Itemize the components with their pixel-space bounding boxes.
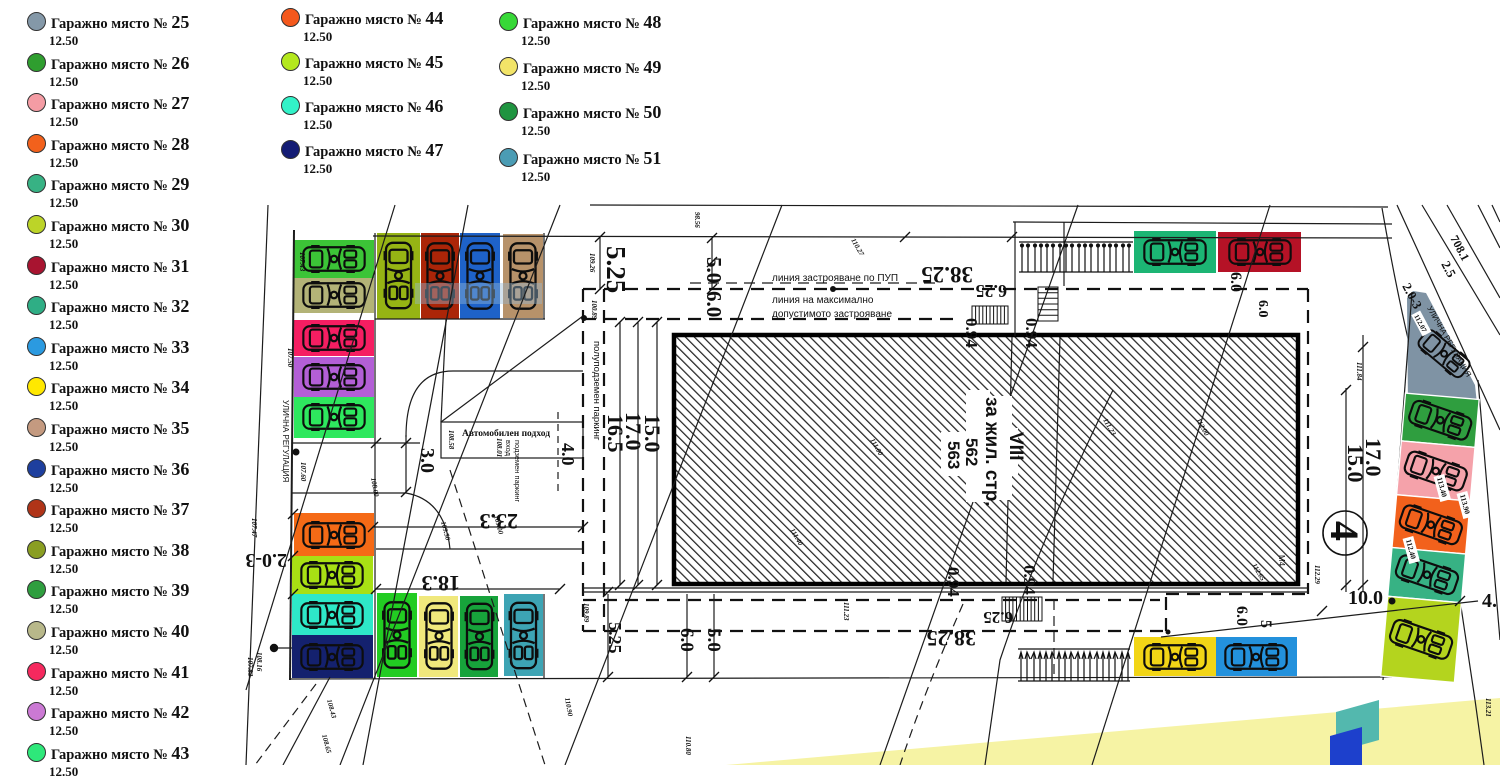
- svg-text:563: 563: [944, 441, 963, 469]
- svg-text:6.25: 6.25: [976, 281, 1008, 301]
- svg-text:5.25: 5.25: [605, 622, 625, 654]
- svg-text:6.0: 6.0: [676, 628, 697, 652]
- svg-text:108.01: 108.01: [495, 438, 503, 457]
- svg-text:562: 562: [962, 438, 981, 466]
- svg-text:допустимото застрояване: допустимото застрояване: [772, 309, 892, 320]
- svg-text:110.27: 110.27: [849, 237, 866, 258]
- svg-text:0.94: 0.94: [1020, 565, 1039, 595]
- svg-text:М4: М4: [1277, 555, 1286, 567]
- svg-text:107.83: 107.83: [246, 657, 254, 677]
- svg-text:109.26: 109.26: [588, 253, 596, 273]
- svg-text:вход: вход: [504, 440, 513, 457]
- svg-text:111.23: 111.23: [842, 602, 850, 621]
- svg-text:108.43: 108.43: [325, 698, 338, 719]
- svg-text:112.29: 112.29: [1313, 565, 1321, 584]
- svg-text:6.0: 6.0: [1233, 606, 1250, 626]
- svg-text:38.25: 38.25: [921, 262, 973, 287]
- svg-text:5.25: 5.25: [601, 246, 631, 293]
- svg-text:15.0: 15.0: [1343, 444, 1368, 483]
- svg-text:4.0: 4.0: [558, 443, 578, 466]
- svg-text:107.47: 107.47: [250, 518, 258, 538]
- svg-text:38.25: 38.25: [927, 626, 977, 651]
- svg-text:полуподземен паркинг: полуподземен паркинг: [591, 341, 602, 441]
- svg-text:VIII: VIII: [1005, 432, 1026, 461]
- svg-text:4: 4: [1322, 521, 1367, 541]
- svg-text:0.94: 0.94: [962, 318, 981, 348]
- svg-text:113.21: 113.21: [1484, 698, 1492, 717]
- svg-text:6.0: 6.0: [1227, 272, 1244, 292]
- svg-text:6.0: 6.0: [702, 291, 726, 317]
- svg-text:0.94: 0.94: [1022, 318, 1041, 348]
- svg-text:линия на максимално: линия на максимално: [772, 295, 874, 306]
- svg-text:110.90: 110.90: [563, 697, 574, 717]
- svg-text:111.84: 111.84: [1355, 362, 1363, 381]
- svg-text:3.0: 3.0: [416, 448, 438, 473]
- svg-text:за жил. стр.: за жил. стр.: [981, 397, 1002, 507]
- svg-text:6.25: 6.25: [983, 608, 1013, 627]
- svg-text:5.0: 5.0: [702, 257, 726, 283]
- svg-text:Автомобилен подход: Автомобилен подход: [462, 428, 550, 439]
- svg-text:108.58: 108.58: [447, 430, 455, 450]
- svg-text:5: 5: [1257, 620, 1274, 628]
- svg-text:109.50: 109.50: [439, 520, 452, 541]
- svg-text:подземен паркинг: подземен паркинг: [513, 440, 522, 503]
- svg-text:18.3: 18.3: [422, 571, 461, 596]
- svg-text:108.16: 108.16: [255, 652, 263, 672]
- svg-text:108.65: 108.65: [320, 733, 333, 754]
- svg-text:107.43: 107.43: [298, 252, 306, 272]
- svg-text:4.: 4.: [1482, 590, 1497, 612]
- svg-text:108.00: 108.00: [369, 477, 380, 498]
- svg-text:109.89: 109.89: [582, 603, 590, 623]
- svg-text:10.0: 10.0: [1348, 587, 1383, 609]
- svg-text:15.0: 15.0: [640, 414, 665, 453]
- svg-text:98.56: 98.56: [693, 212, 701, 228]
- svg-text:линия застрояване по ПУП: линия застрояване по ПУП: [772, 273, 898, 284]
- svg-text:5.0: 5.0: [703, 628, 724, 652]
- svg-text:107.60: 107.60: [299, 462, 307, 482]
- svg-text:2.0-3: 2.0-3: [245, 549, 287, 571]
- svg-text:0.94: 0.94: [944, 567, 963, 597]
- svg-text:УЛИЧНА РЕГУЛАЦИЯ: УЛИЧНА РЕГУЛАЦИЯ: [281, 400, 290, 483]
- svg-text:6.0: 6.0: [1255, 300, 1270, 318]
- svg-text:110.80: 110.80: [684, 736, 692, 755]
- svg-text:107.50: 107.50: [286, 348, 294, 368]
- svg-text:100.89: 100.89: [590, 300, 598, 320]
